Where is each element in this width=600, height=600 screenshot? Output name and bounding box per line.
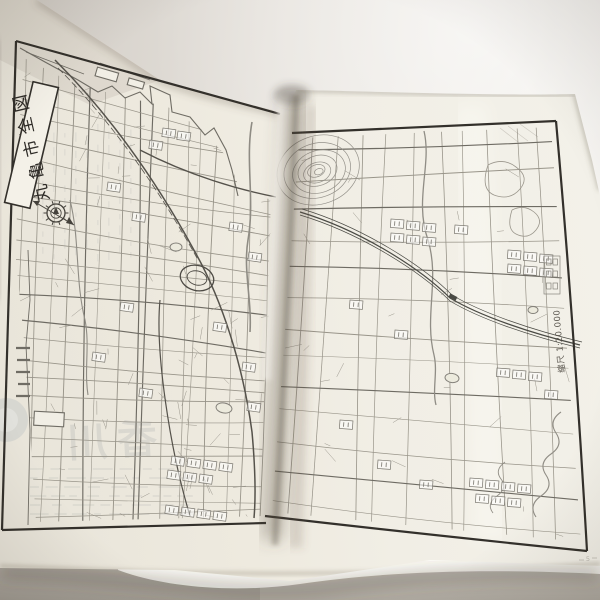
vignette [0, 0, 600, 600]
map-book-scene: 香川 [0, 0, 600, 600]
photo-of-open-map-book: 香川 [0, 0, 600, 600]
